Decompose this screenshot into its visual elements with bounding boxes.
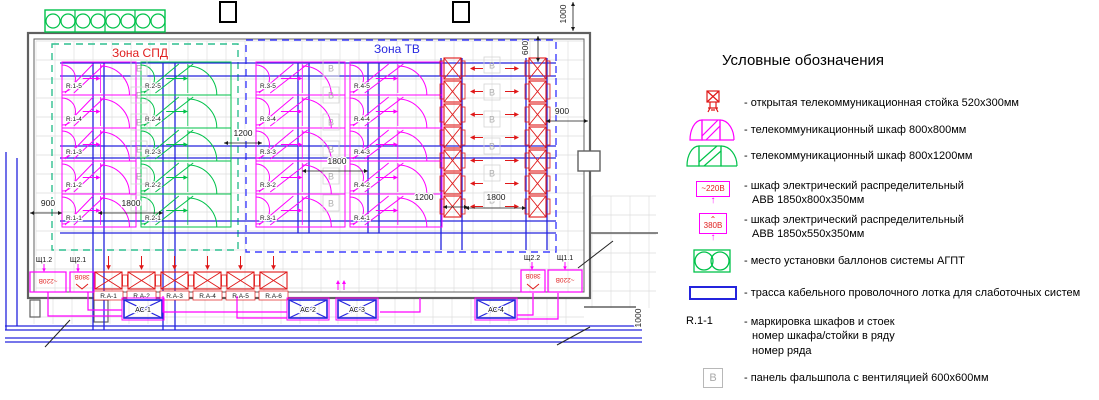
svg-text:R.A-6: R.A-6 xyxy=(265,293,282,300)
svg-text:~220В: ~220В xyxy=(39,277,58,284)
svg-text:В: В xyxy=(328,118,334,128)
svg-text:В: В xyxy=(136,172,142,182)
legend-item-marking: R.1-1 - маркировка шкафов и стоекномер ш… xyxy=(682,315,1094,358)
svg-text:R.2-2: R.2-2 xyxy=(145,182,161,189)
tk-cabinet-800-icon xyxy=(682,118,744,142)
svg-text:R.A-2: R.A-2 xyxy=(133,293,150,300)
svg-text:R.3-1: R.3-1 xyxy=(260,215,276,222)
svg-text:1200: 1200 xyxy=(234,128,253,138)
cabinet-row-2: R.2-5R.2-4R.2-3R.2-2R.2-1 xyxy=(141,62,231,227)
legend-item-cab800: - телекоммуникационный шкаф 800х800мм xyxy=(682,117,1094,143)
svg-text:В: В xyxy=(489,142,495,152)
svg-text:АС-3: АС-3 xyxy=(349,307,365,314)
agpt-cylinders xyxy=(45,10,165,32)
svg-text:R.2-3: R.2-3 xyxy=(145,149,161,156)
elec-cabinet-220-icon: ~220В ↑ xyxy=(682,181,744,205)
svg-text:R.2-5: R.2-5 xyxy=(145,83,161,90)
svg-text:R.4-3: R.4-3 xyxy=(354,149,370,156)
svg-text:R.4-2: R.4-2 xyxy=(354,182,370,189)
svg-text:В: В xyxy=(489,88,495,98)
svg-text:Щ2.2: Щ2.2 xyxy=(524,255,540,262)
power-box-text: ~220В xyxy=(556,276,575,283)
svg-text:В: В xyxy=(328,91,334,101)
svg-text:АС-2: АС-2 xyxy=(300,307,316,314)
svg-text:В: В xyxy=(136,118,142,128)
legend-item-label3: номер ряда xyxy=(744,344,895,358)
cabinet-row-4: R.4-5R.4-4R.4-3R.4-2R.4-1 xyxy=(350,62,442,227)
svg-text:1000: 1000 xyxy=(633,308,643,327)
svg-text:R.1-3: R.1-3 xyxy=(66,149,82,156)
voltage-badge: 380В xyxy=(704,221,723,230)
svg-text:R.A-4: R.A-4 xyxy=(199,293,216,300)
svg-text:R.3-4: R.3-4 xyxy=(260,116,276,123)
legend-item-label: - трасса кабельного проволочного лотка д… xyxy=(744,286,1080,300)
legend-item-elec380: ⌃380В ↑ - шкаф электрический распределит… xyxy=(682,211,1094,243)
svg-text:~220В: ~220В xyxy=(556,276,575,283)
legend-item-vent: В - панель фальшпола с вентиляцией 600х6… xyxy=(682,366,1094,390)
svg-text:R.4-4: R.4-4 xyxy=(354,116,370,123)
svg-text:1200: 1200 xyxy=(415,192,434,202)
legend-item-label: - панель фальшпола с вентиляцией 600х600… xyxy=(744,371,989,385)
svg-text:В: В xyxy=(489,61,495,71)
svg-text:R.A-5: R.A-5 xyxy=(232,293,249,300)
svg-text:R.4-5: R.4-5 xyxy=(354,83,370,90)
svg-text:R.2-4: R.2-4 xyxy=(145,116,161,123)
elec-cabinet-380-icon: ⌃380В ↑ xyxy=(682,213,744,242)
bottom-rack-row: R.A-1R.A-2R.A-3R.A-4R.A-5R.A-6 xyxy=(94,256,288,300)
svg-text:АС-1: АС-1 xyxy=(135,307,151,314)
vent-panel-letter: В xyxy=(703,368,723,388)
svg-text:1800: 1800 xyxy=(328,156,347,166)
leader-line xyxy=(578,241,613,268)
marking-example: R.1-1 xyxy=(682,315,744,327)
svg-text:В: В xyxy=(328,172,334,182)
legend-item-label: - открытая телекоммуникационная стойка 5… xyxy=(744,96,1019,110)
legend-item-elec220: ~220В ↑ - шкаф электрический распределит… xyxy=(682,177,1094,209)
leader-line xyxy=(45,320,70,347)
agpt-icon xyxy=(682,248,744,274)
svg-text:R.A-3: R.A-3 xyxy=(166,293,183,300)
legend-title: Условные обозначения xyxy=(722,52,1094,69)
tk-cabinet-1200-icon xyxy=(682,144,744,168)
power-box-text: ~220В xyxy=(39,277,58,284)
svg-text:R.1-4: R.1-4 xyxy=(66,116,82,123)
svg-text:В: В xyxy=(136,145,142,155)
legend-item-label: - телекоммуникационный шкаф 800х1200мм xyxy=(744,149,973,163)
svg-text:Щ1.1: Щ1.1 xyxy=(557,255,573,262)
legend-item-label: - шкаф электрический распределительный xyxy=(744,180,964,192)
svg-text:Щ2.1: Щ2.1 xyxy=(70,257,86,264)
svg-text:R.4-1: R.4-1 xyxy=(354,215,370,222)
svg-text:Зона СПД: Зона СПД xyxy=(112,46,168,60)
legend: Условные обозначения - открытая телекомм… xyxy=(682,52,1094,390)
svg-text:R.1-1: R.1-1 xyxy=(66,215,82,222)
power-box-text: 380В xyxy=(74,273,89,289)
svg-text:900: 900 xyxy=(555,106,569,116)
svg-text:1800: 1800 xyxy=(487,192,506,202)
up-arrow-icon: ↑ xyxy=(710,197,715,205)
svg-text:Зона ТВ: Зона ТВ xyxy=(374,42,420,56)
svg-text:R.3-3: R.3-3 xyxy=(260,149,276,156)
svg-text:В: В xyxy=(489,115,495,125)
svg-text:R.2-1: R.2-1 xyxy=(145,215,161,222)
svg-text:1800: 1800 xyxy=(122,198,141,208)
page: { "legend": { "title": "Условные обознач… xyxy=(0,0,1099,400)
svg-text:R.1-2: R.1-2 xyxy=(66,182,82,189)
legend-item-open-rack: - открытая телекоммуникационная стойка 5… xyxy=(682,89,1094,117)
svg-text:В: В xyxy=(136,91,142,101)
floor-plan-area: Зона СПДЗона ТВR.1-5R.1-4R.1-3R.1-2R.1-1… xyxy=(0,0,660,400)
legend-item-label2: АВВ 1850х550х350мм xyxy=(744,227,964,241)
vent-panels: ВВВВВВВВВВВВВВВВВВ xyxy=(131,57,500,211)
legend-item-label: - место установки баллонов системы АГПТ xyxy=(744,254,965,268)
svg-text:R.3-2: R.3-2 xyxy=(260,182,276,189)
svg-text:В: В xyxy=(328,64,334,74)
svg-text:R.A-1: R.A-1 xyxy=(100,293,117,300)
svg-text:380В: 380В xyxy=(525,272,540,279)
svg-text:АС-4: АС-4 xyxy=(488,307,504,314)
svg-text:1000: 1000 xyxy=(558,4,568,23)
column xyxy=(220,2,236,22)
svg-text:R.1-5: R.1-5 xyxy=(66,83,82,90)
svg-text:380В: 380В xyxy=(74,273,89,280)
svg-text:Щ1.2: Щ1.2 xyxy=(36,257,52,264)
column xyxy=(453,2,469,22)
svg-text:600: 600 xyxy=(520,41,530,55)
legend-item-label2: номер шкафа/стойки в ряду xyxy=(744,329,895,343)
open-rack-icon xyxy=(682,90,744,116)
vent-panel-icon: В xyxy=(682,368,744,388)
legend-item-cab1200: - телекоммуникационный шкаф 800х1200мм xyxy=(682,143,1094,169)
legend-item-label2: АВВ 1850х800х350мм xyxy=(744,193,964,207)
power-box-text: 380В xyxy=(525,272,540,289)
svg-text:R.3-5: R.3-5 xyxy=(260,83,276,90)
floor-plan: Зона СПДЗона ТВR.1-5R.1-4R.1-3R.1-2R.1-1… xyxy=(0,0,660,400)
legend-item-agpt: - место установки баллонов системы АГПТ xyxy=(682,247,1094,275)
power-panels: Щ1.2Щ2.1Щ2.2Щ1.1~220В380В380В~220В xyxy=(30,255,582,292)
legend-item-label: - маркировка шкафов и стоек xyxy=(744,316,895,328)
svg-text:В: В xyxy=(328,145,334,155)
legend-item-label: - шкаф электрический распределительный xyxy=(744,214,964,226)
svg-text:900: 900 xyxy=(41,198,55,208)
cable-tray-icon xyxy=(682,286,744,300)
legend-item-label: - телекоммуникационный шкаф 800х800мм xyxy=(744,123,966,137)
svg-text:В: В xyxy=(328,199,334,209)
svg-text:В: В xyxy=(489,169,495,179)
svg-text:В: В xyxy=(136,64,142,74)
up-arrow-icon: ↑ xyxy=(711,234,716,242)
legend-item-tray: - трасса кабельного проволочного лотка д… xyxy=(682,284,1094,302)
